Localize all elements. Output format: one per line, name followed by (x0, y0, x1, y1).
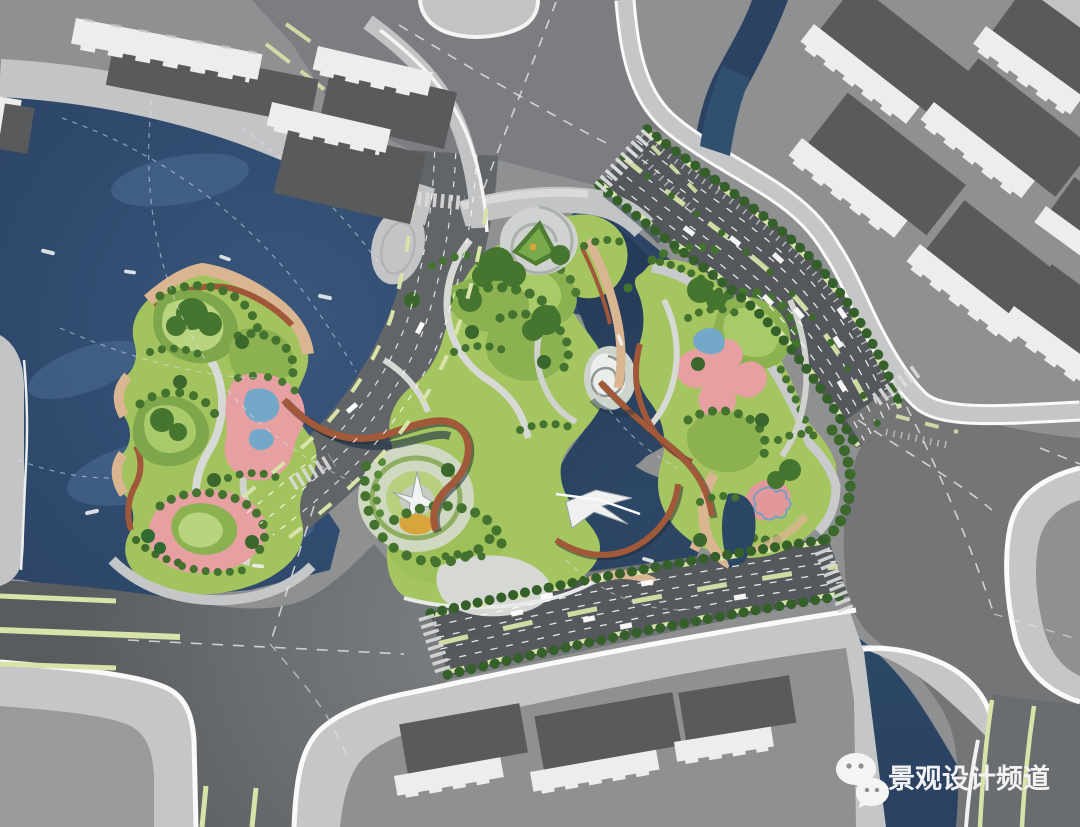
svg-text:景观设计频道: 景观设计频道 (888, 763, 1050, 794)
